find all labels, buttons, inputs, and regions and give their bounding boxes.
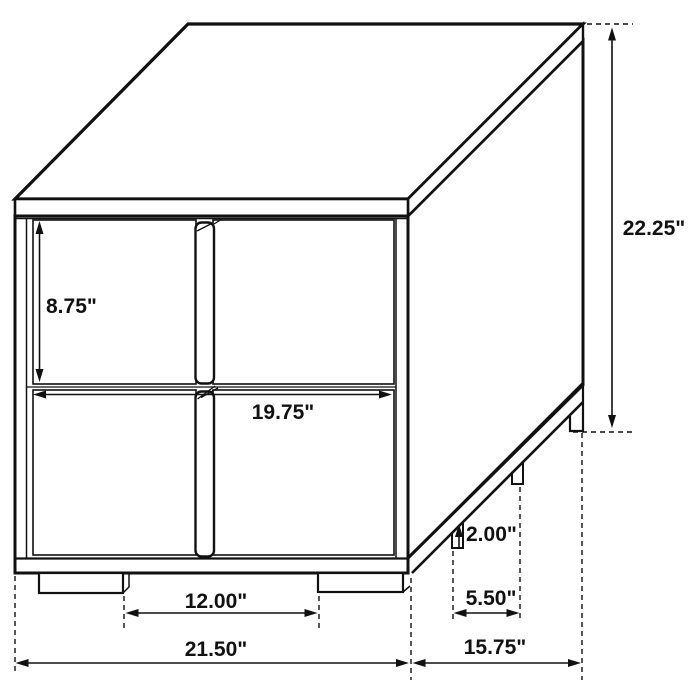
front-right-leg <box>318 573 403 592</box>
dim-label-side-leg-spacing: 5.50" <box>466 587 517 610</box>
drawer-panel-top-right <box>213 220 394 384</box>
arrowhead-down <box>608 415 616 428</box>
nightstand-outline <box>15 24 583 593</box>
arrowhead-right <box>396 659 409 667</box>
arrowhead-left <box>413 659 426 667</box>
arrowhead-right <box>507 609 520 617</box>
arrowhead-right <box>305 609 318 617</box>
top-drawer-handle <box>196 223 215 384</box>
bottom-drawer-handle <box>196 392 215 557</box>
dim-label-overall-depth: 15.75" <box>464 636 527 659</box>
dim-label-drawer-height: 8.75" <box>46 295 97 318</box>
top-slab-front <box>15 199 408 216</box>
nightstand-dimension-drawing: 8.75" 19.75" 22.25" 2.00" 5.50" 12.00" 2… <box>0 0 700 700</box>
arrowhead-left <box>16 659 29 667</box>
arrowhead-left <box>454 609 467 617</box>
dim-label-drawer-width: 19.75" <box>252 401 315 424</box>
dim-label-overall-width: 21.50" <box>185 638 248 661</box>
arrowhead-left <box>126 609 139 617</box>
dim-label-overall-height: 22.25" <box>623 217 686 240</box>
dim-label-leg-height: 2.00" <box>466 523 517 546</box>
dim-label-front-leg-spacing: 12.00" <box>185 590 248 613</box>
front-left-leg <box>39 573 123 593</box>
dimension-diagram-canvas: 8.75" 19.75" 22.25" 2.00" 5.50" 12.00" 2… <box>0 0 700 700</box>
arrowhead-right <box>568 659 581 667</box>
drawer-panel-bottom-left <box>33 390 196 555</box>
arrowhead-up <box>608 28 616 41</box>
